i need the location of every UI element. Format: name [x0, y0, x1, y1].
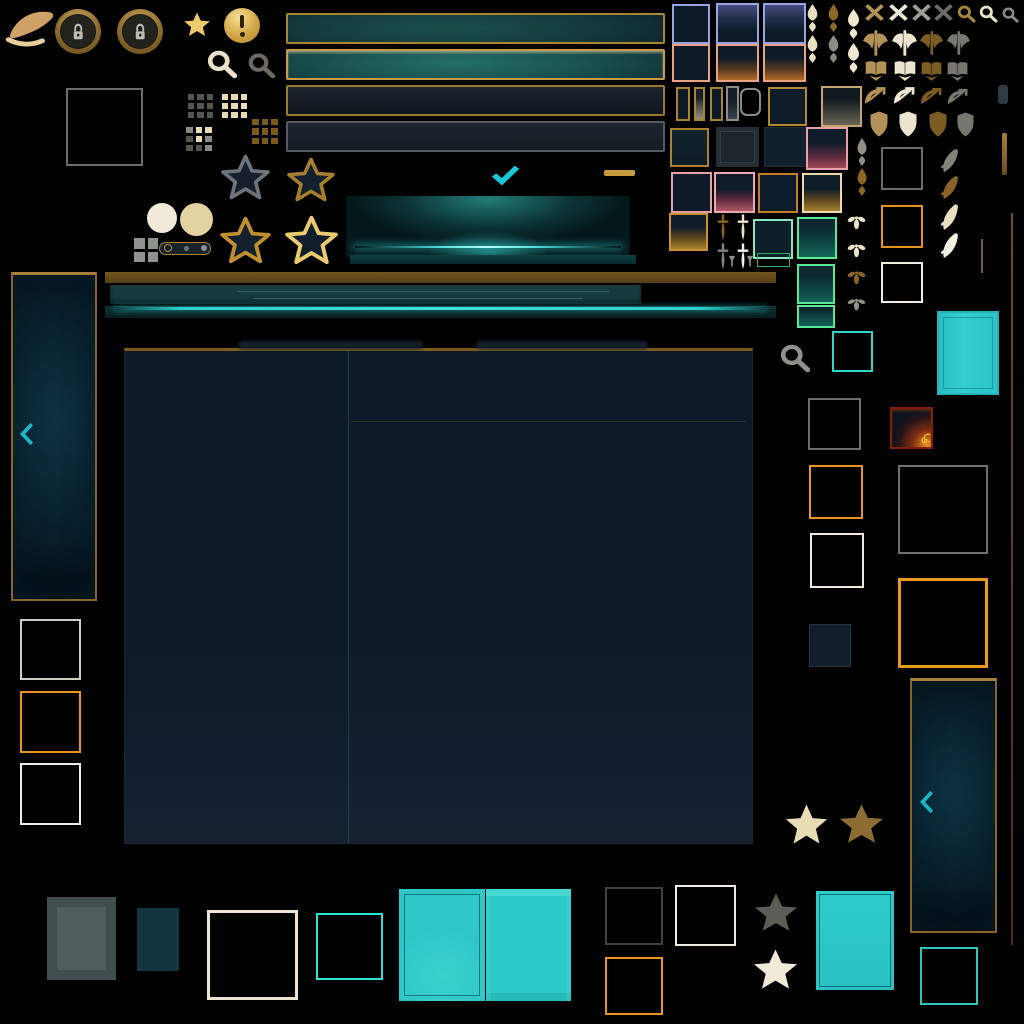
- hat-swoosh-icon: [4, 6, 58, 54]
- item-slot-green-teal: [797, 217, 837, 259]
- strip-teal-dark: [350, 255, 636, 264]
- item-slot-pink: [671, 172, 712, 213]
- exclaim-dot: [240, 32, 245, 37]
- token-circle-tan: [180, 203, 213, 236]
- grid-dot: [188, 112, 194, 118]
- grid-dot: [196, 136, 203, 142]
- ornament-icon-gold: [855, 168, 869, 196]
- funnel-icon-gray-2: [745, 254, 755, 269]
- bee-icon-gray: [847, 296, 866, 312]
- grid-dot: [207, 94, 213, 100]
- lock-glyph: [131, 21, 149, 44]
- search-icon-cream-small: [978, 4, 998, 23]
- dagger-icon-gray: [938, 147, 965, 173]
- close-icon-gray: [911, 3, 932, 22]
- banner-glow-line: [355, 246, 622, 248]
- panel-divider: [348, 351, 349, 843]
- grid-dots-2x2: [134, 238, 158, 262]
- banner-teal-glow: [346, 196, 630, 258]
- panel-faint-line: [351, 421, 746, 422]
- funnel-icon-gray-1: [727, 254, 737, 269]
- slot-vertical-gold-1: [676, 87, 690, 121]
- item-slot-gold-grad: [669, 213, 708, 251]
- grid-dot: [231, 112, 237, 118]
- tile-gray-framed-inner: [57, 907, 106, 970]
- button-bar-teal-hover: [286, 49, 665, 80]
- close-icon-tan: [864, 3, 885, 22]
- grid-dots-cream: [222, 94, 247, 118]
- dagger-icon-brown: [938, 174, 965, 200]
- item-slot-orange-border: [758, 173, 798, 213]
- button-teal-pressed-inner: [404, 894, 480, 996]
- check-icon-teal: [491, 163, 520, 186]
- book-icon-tan: [863, 59, 889, 82]
- bar-teal-streaks: [110, 285, 641, 304]
- button-bar-disabled: [286, 121, 665, 152]
- ornament-icon-cream-large-2: [845, 43, 862, 73]
- axe-icon-brown: [919, 30, 944, 56]
- button-teal-active: [816, 891, 894, 990]
- grid-dot: [252, 138, 259, 144]
- frame-teal-square-2: [316, 913, 383, 980]
- grid-dot: [271, 138, 278, 144]
- grid-dot: [197, 103, 203, 109]
- frame-gray-square: [66, 88, 143, 166]
- grid-dot: [271, 128, 278, 134]
- frame-gray-square-3: [808, 398, 861, 450]
- grid-dot: [222, 103, 228, 109]
- grid-dot: [252, 128, 259, 134]
- ornament-icon-gray: [826, 35, 841, 63]
- grid-dot: [262, 138, 269, 144]
- slot-vertical-gray: [726, 86, 739, 121]
- banner-center-glow: [346, 196, 630, 258]
- chevron-left-icon: [919, 791, 934, 813]
- frame-teal-square: [832, 331, 873, 372]
- grid-dot: [197, 112, 203, 118]
- star-icon-cream-big: [784, 802, 829, 847]
- content-panel: [124, 348, 753, 844]
- frame-cream-square-2: [810, 533, 864, 588]
- item-slot-tan-grad: [821, 86, 862, 127]
- grid-dot: [134, 238, 145, 249]
- divider-line-brown-long: [1011, 213, 1013, 945]
- slot-pill-dark: [998, 85, 1008, 104]
- frame-orange-square-left: [20, 691, 81, 753]
- button-teal-pressed: [399, 889, 485, 1001]
- fire-swirl-icon: [915, 431, 930, 446]
- grid-dot: [197, 94, 203, 100]
- bee-icon-cream-2: [847, 241, 866, 259]
- grid-dot: [222, 94, 228, 100]
- dash-gold: [604, 170, 635, 176]
- sprite-atlas-canvas: [0, 0, 1024, 1024]
- grid-dot: [241, 103, 247, 109]
- slider-pill: [159, 242, 211, 255]
- grid-dot: [222, 112, 228, 118]
- close-icon-white: [888, 3, 909, 22]
- bar-teal-glowline: [105, 306, 776, 318]
- tile-dark-framed-inner: [720, 131, 755, 163]
- bow-icon-tan: [861, 85, 888, 107]
- grid-dot: [231, 103, 237, 109]
- book-icon-brown: [919, 60, 944, 82]
- frame-light-square-left: [20, 619, 81, 680]
- alert-coin-icon: [224, 8, 260, 43]
- frame-cream-square-3: [675, 885, 736, 946]
- pill-dot: [164, 244, 172, 252]
- star-icon-gray: [753, 891, 799, 934]
- grid-dot: [186, 136, 193, 142]
- item-slot-gold: [768, 87, 807, 126]
- item-slot-orange-grad-2: [763, 44, 806, 82]
- frame-orange-square: [881, 205, 923, 248]
- frame-fire-square: [890, 407, 933, 449]
- shield-icon-brown: [929, 111, 947, 137]
- chevron-left-icon: [19, 423, 34, 445]
- side-panel-right: [910, 678, 997, 933]
- axe-icon-tan: [862, 29, 889, 57]
- ornament-icon-cream-large-1: [845, 9, 862, 39]
- frame-darkgray-square: [605, 887, 663, 945]
- grid-dot: [262, 128, 269, 134]
- glow-line: [115, 307, 766, 310]
- frame-orange-square-big: [898, 578, 988, 668]
- item-slot-gold-2: [670, 128, 709, 167]
- star-slot-gold-bright: [285, 215, 338, 266]
- tile-navy-2: [764, 127, 807, 167]
- tile-teal-dark: [137, 908, 179, 971]
- grid-dot: [186, 145, 193, 151]
- button-bar-teal: [286, 13, 665, 44]
- star-slot-gold-1: [287, 157, 335, 203]
- ornament-icon-cream-2: [805, 35, 820, 63]
- search-icon-gray: [246, 51, 276, 79]
- ornament-icon-gray-2: [855, 138, 869, 166]
- book-icon-cream: [892, 59, 918, 82]
- frame-orange-square-2: [809, 465, 863, 519]
- close-icon-darkgray: [933, 3, 954, 22]
- shield-icon-cream: [899, 111, 917, 137]
- item-slot-green-teal-2: [797, 264, 835, 304]
- dagger-icon-white: [938, 231, 965, 259]
- grid-dot: [205, 127, 212, 133]
- ornament-icon-brown: [826, 4, 841, 32]
- star-icon-bronze-big: [838, 802, 885, 846]
- button-teal-default: [486, 889, 571, 1001]
- grid-dots-mixed: [186, 127, 212, 151]
- frame-gray-square-big: [898, 465, 988, 554]
- frame-green-small: [757, 253, 790, 267]
- smudge-text-left: [238, 341, 423, 349]
- item-slot-blue-grad-2: [763, 3, 806, 44]
- frame-teal-square-3: [920, 947, 978, 1005]
- lock-glyph: [69, 21, 87, 44]
- search-icon-gray-large: [778, 342, 811, 373]
- slot-vertical-gold-2: [694, 87, 705, 121]
- axe-icon-gray: [946, 30, 971, 56]
- grid-dots-gray: [188, 94, 213, 118]
- frame-cream-square-big: [207, 910, 298, 1000]
- grid-dot: [148, 238, 159, 249]
- item-slot-blue: [672, 4, 710, 44]
- ornament-icon-cream-1: [805, 4, 820, 32]
- divider-line-brown-short: [981, 239, 983, 273]
- star-icon-cream-small: [752, 947, 799, 992]
- grid-dot: [188, 94, 194, 100]
- shield-icon-tan: [870, 111, 888, 137]
- tile-gray-framed: [47, 897, 116, 980]
- frame-white-square-left: [20, 763, 81, 825]
- bee-icon-brown: [847, 268, 866, 286]
- bow-icon-gray: [944, 87, 970, 107]
- item-slot-green-teal-3: [797, 305, 835, 328]
- grid-dot: [148, 252, 159, 263]
- grid-dot: [252, 119, 259, 125]
- grid-dot: [271, 119, 278, 125]
- grid-dot: [205, 136, 212, 142]
- search-icon-cream: [205, 48, 238, 79]
- smudge-text-right: [476, 341, 648, 349]
- side-panel-left: [11, 272, 97, 601]
- grid-dot: [207, 112, 213, 118]
- bee-icon-cream-1: [847, 213, 866, 231]
- item-slot-blue-grad: [716, 3, 759, 44]
- shield-icon-gray: [957, 112, 974, 137]
- sword-icon-brown: [716, 214, 730, 240]
- slot-vertical-gold-3: [710, 87, 723, 121]
- grid-dot: [241, 112, 247, 118]
- star-slot-gray: [221, 154, 270, 201]
- item-slot-salmon: [672, 44, 710, 82]
- grid-dot: [207, 103, 213, 109]
- grid-dot: [188, 103, 194, 109]
- frame-white-square: [881, 262, 923, 303]
- dagger-icon-cream: [938, 202, 965, 231]
- search-icon-gray-small: [1001, 6, 1019, 23]
- slot-rounded-outline: [740, 88, 761, 116]
- lock-coin-icon: [55, 9, 101, 54]
- bar-brown: [105, 272, 776, 283]
- exclaim-bar: [240, 15, 245, 28]
- bow-icon-cream: [890, 85, 917, 107]
- item-slot-orange-grad: [716, 44, 759, 82]
- item-slot-pink-grad-2: [714, 172, 755, 213]
- button-bar-dark: [286, 85, 665, 116]
- grid-dot: [196, 145, 203, 151]
- button-teal-tall-inner: [943, 317, 993, 389]
- pill-dot: [201, 245, 207, 251]
- star-icon-gold: [183, 11, 211, 38]
- tick-gold-vertical: [1002, 133, 1007, 175]
- grid-dot: [196, 127, 203, 133]
- tile-navy-small: [809, 624, 851, 667]
- token-circle-cream: [147, 203, 177, 233]
- lock-coin-icon-2: [117, 9, 163, 54]
- grid-dot: [134, 252, 145, 263]
- grid-dot: [231, 94, 237, 100]
- streak-line: [237, 291, 609, 293]
- grid-dot: [205, 145, 212, 151]
- button-teal-tall: [937, 311, 999, 395]
- bow-icon-brown: [917, 86, 944, 107]
- tile-dark-framed: [716, 127, 759, 167]
- search-icon-gold-small: [956, 4, 976, 23]
- sword-icon-cream: [736, 214, 750, 240]
- book-icon-gray: [945, 60, 970, 82]
- frame-gray-square-2: [881, 147, 923, 190]
- pill-dot: [184, 246, 189, 251]
- grid-dot: [241, 94, 247, 100]
- item-slot-cream-grad: [802, 173, 842, 213]
- item-slot-pink-grad: [806, 127, 848, 170]
- axe-icon-cream: [891, 29, 918, 57]
- button-teal-active-inner: [819, 894, 891, 987]
- streak-line: [253, 298, 582, 300]
- grid-dot: [262, 119, 269, 125]
- star-slot-gold-2: [220, 216, 271, 265]
- frame-orange-square-3: [605, 957, 663, 1015]
- grid-dot: [186, 127, 193, 133]
- grid-dots-brown: [252, 119, 278, 144]
